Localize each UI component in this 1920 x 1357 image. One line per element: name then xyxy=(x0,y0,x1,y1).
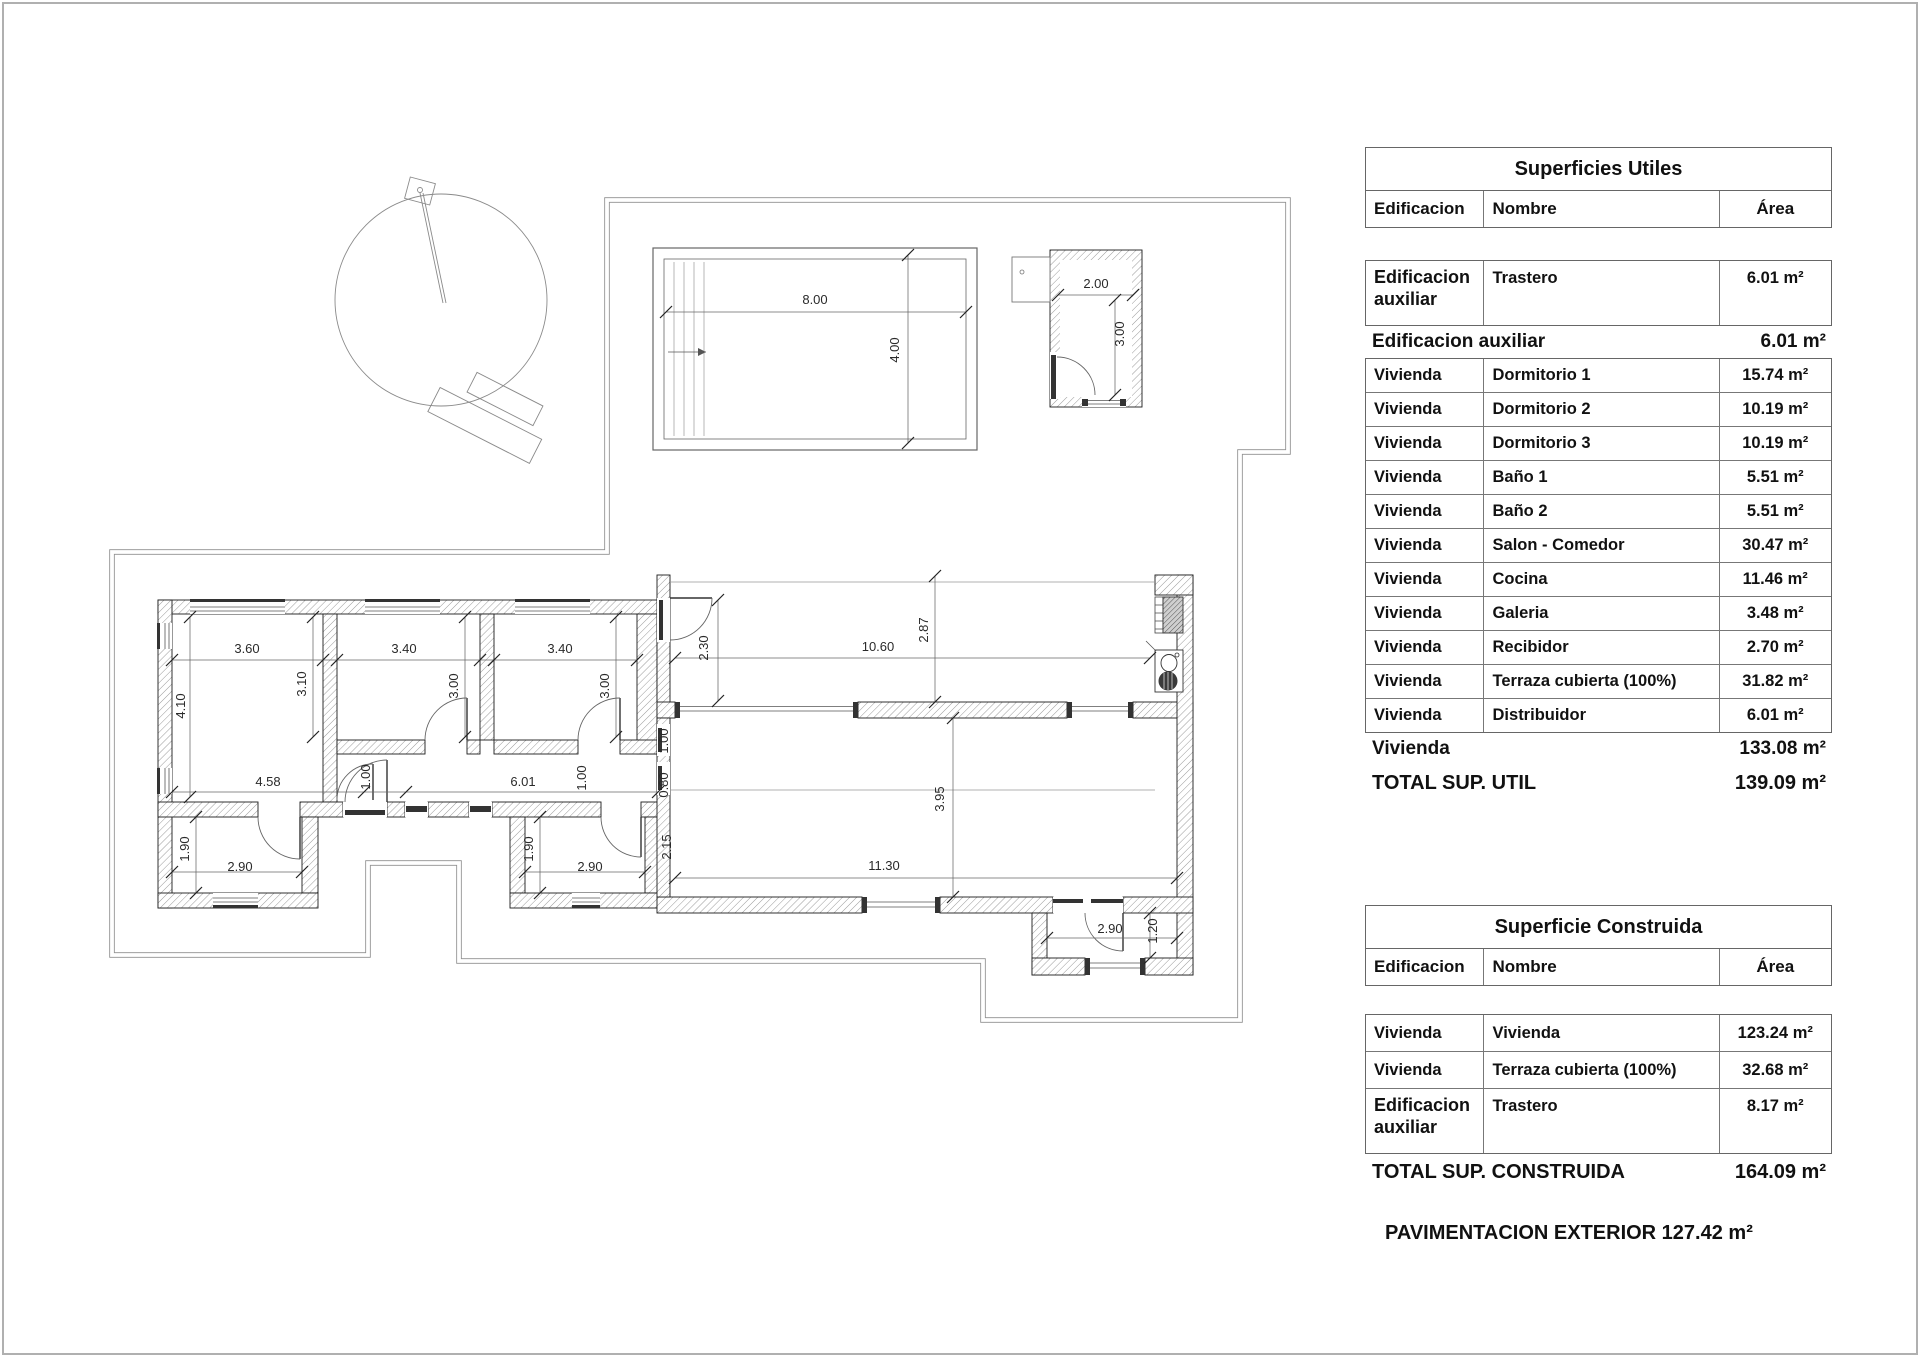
row-area: 8.17 m² xyxy=(1719,1089,1832,1153)
dim-trastero-depth: 3.00 xyxy=(1112,321,1127,346)
table-row: Edificacion auxiliar Trastero 8.17 m² xyxy=(1366,1089,1831,1153)
dim-bath2-width: 2.90 xyxy=(577,859,602,874)
terrace-and-kitchen xyxy=(670,582,1183,790)
dim-bath2-depth: 1.90 xyxy=(521,836,536,861)
row-area: 32.68 m² xyxy=(1719,1052,1832,1088)
table-row: Vivienda Baño 2 5.51 m² xyxy=(1366,495,1831,529)
swimming-pool xyxy=(653,248,977,450)
table-row: Vivienda Dormitorio 3 10.19 m² xyxy=(1366,427,1831,461)
row-nombre: Dormitorio 1 xyxy=(1483,359,1719,392)
dim-pool-width: 8.00 xyxy=(802,292,827,307)
row-nombre: Terraza cubierta (100%) xyxy=(1483,665,1719,698)
utiles-header-area: Área xyxy=(1719,191,1832,227)
row-edificacion: Vivienda xyxy=(1366,631,1483,664)
table-row: Vivienda Galeria 3.48 m² xyxy=(1366,597,1831,631)
row-nombre: Trastero xyxy=(1483,1089,1719,1153)
dim-living-width: 11.30 xyxy=(868,858,900,873)
row-edificacion: Vivienda xyxy=(1366,495,1483,528)
dim-bath1-depth: 1.90 xyxy=(177,836,192,861)
utiles-subtotal-aux-label: Edificacion auxiliar xyxy=(1372,331,1545,353)
pavimentacion-exterior-note: PAVIMENTACION EXTERIOR 127.42 m² xyxy=(1385,1222,1753,1245)
row-nombre: Salon - Comedor xyxy=(1483,529,1719,562)
row-area: 30.47 m² xyxy=(1719,529,1832,562)
utiles-header-row: Edificacion Nombre Área xyxy=(1366,191,1831,227)
dim-hall-b: 1.00 xyxy=(358,764,373,789)
dim-recibidor-door2: 0.80 xyxy=(656,772,671,797)
row-edificacion: Vivienda xyxy=(1366,597,1483,630)
row-nombre: Vivienda xyxy=(1483,1015,1719,1051)
utiles-group-edificacion: Edificacion auxiliar xyxy=(1366,261,1483,325)
dim-porch-width: 2.90 xyxy=(1097,921,1122,936)
utiles-subtotal-viv-label: Vivienda xyxy=(1372,738,1450,760)
utiles-header-edificacion: Edificacion xyxy=(1366,191,1483,227)
bench-2 xyxy=(428,388,542,464)
row-edificacion: Vivienda xyxy=(1366,393,1483,426)
dim-bedroom1-inner: 3.10 xyxy=(294,671,309,696)
row-nombre: Distribuidor xyxy=(1483,699,1719,732)
table-row: Vivienda Terraza cubierta (100%) 32.68 m… xyxy=(1366,1052,1831,1089)
table-row: Vivienda Dormitorio 2 10.19 m² xyxy=(1366,393,1831,427)
row-edificacion: Vivienda xyxy=(1366,359,1483,392)
dim-bath1-width: 2.90 xyxy=(227,859,252,874)
row-area: 2.70 m² xyxy=(1719,631,1832,664)
table-row: Vivienda Dormitorio 1 15.74 m² xyxy=(1366,359,1831,393)
row-nombre: Dormitorio 2 xyxy=(1483,393,1719,426)
table-row: Vivienda Salon - Comedor 30.47 m² xyxy=(1366,529,1831,563)
row-area: 123.24 m² xyxy=(1719,1015,1832,1051)
construida-header-nombre: Nombre xyxy=(1483,949,1719,985)
dim-bedroom1-width: 3.60 xyxy=(234,641,259,656)
stove-icon xyxy=(1163,597,1183,633)
table-row: Vivienda Terraza cubierta (100%) 31.82 m… xyxy=(1366,665,1831,699)
utiles-title: Superficies Utiles xyxy=(1366,148,1831,191)
table-row: Vivienda Vivienda 123.24 m² xyxy=(1366,1015,1831,1052)
table-row: Vivienda Baño 1 5.51 m² xyxy=(1366,461,1831,495)
superficies-utiles-table: Superficies Utiles Edificacion Nombre Ár… xyxy=(1365,147,1832,801)
dim-hall-d: 1.00 xyxy=(574,765,589,790)
row-nombre: Galeria xyxy=(1483,597,1719,630)
row-area: 10.19 m² xyxy=(1719,393,1832,426)
construida-header-row: Edificacion Nombre Área xyxy=(1366,949,1831,985)
row-nombre: Cocina xyxy=(1483,563,1719,596)
dim-bedroom3-width: 3.40 xyxy=(547,641,572,656)
row-edificacion: Vivienda xyxy=(1366,1052,1483,1088)
row-edificacion: Vivienda xyxy=(1366,529,1483,562)
row-nombre: Dormitorio 3 xyxy=(1483,427,1719,460)
dim-terrace-left: 2.30 xyxy=(696,635,711,660)
dim-bedroom1-depth: 4.10 xyxy=(173,693,188,718)
superficie-construida-table: Superficie Construida Edificacion Nombre… xyxy=(1365,905,1832,1190)
table-row: Vivienda Cocina 11.46 m² xyxy=(1366,563,1831,597)
row-nombre: Baño 2 xyxy=(1483,495,1719,528)
construida-header-area: Área xyxy=(1719,949,1832,985)
dim-galeria-depth: 2.15 xyxy=(659,834,674,859)
dim-porch-depth: 1.20 xyxy=(1145,918,1160,943)
dim-bedroom3-depth: 3.00 xyxy=(597,673,612,698)
utiles-subtotal-vivienda: Vivienda 133.08 m² xyxy=(1365,733,1832,765)
row-area: 11.46 m² xyxy=(1719,563,1832,596)
utiles-group-nombre: Trastero xyxy=(1483,261,1719,325)
construida-total-value: 164.09 m² xyxy=(1735,1161,1826,1184)
kitchen-counter-edge xyxy=(1155,597,1163,633)
utiles-subtotal-aux-value: 6.01 m² xyxy=(1761,331,1826,353)
construida-total-label: TOTAL SUP. CONSTRUIDA xyxy=(1372,1161,1625,1184)
table-row: Vivienda Distribuidor 6.01 m² xyxy=(1366,699,1831,732)
dim-living-depth: 3.95 xyxy=(932,786,947,811)
dim-terrace-width: 10.60 xyxy=(862,639,895,654)
row-edificacion: Vivienda xyxy=(1366,461,1483,494)
utiles-total: TOTAL SUP. UTIL 139.09 m² xyxy=(1365,765,1832,801)
row-area: 3.48 m² xyxy=(1719,597,1832,630)
round-feature xyxy=(335,177,547,463)
utiles-total-value: 139.09 m² xyxy=(1735,772,1826,795)
row-edificacion: Vivienda xyxy=(1366,1015,1483,1051)
row-nombre: Baño 1 xyxy=(1483,461,1719,494)
table-row: Vivienda Recibidor 2.70 m² xyxy=(1366,631,1831,665)
dim-hall-length: 6.01 xyxy=(510,774,535,789)
row-area: 6.01 m² xyxy=(1719,699,1832,732)
row-area: 15.74 m² xyxy=(1719,359,1832,392)
utiles-header-nombre: Nombre xyxy=(1483,191,1719,227)
dim-terrace-right: 2.87 xyxy=(916,617,931,642)
dim-bedroom2-depth: 3.00 xyxy=(446,673,461,698)
row-area: 5.51 m² xyxy=(1719,461,1832,494)
row-area: 10.19 m² xyxy=(1719,427,1832,460)
row-edificacion: Vivienda xyxy=(1366,699,1483,732)
dim-pool-depth: 4.00 xyxy=(887,337,902,362)
ac-unit xyxy=(1012,257,1050,302)
construida-header-edificacion: Edificacion xyxy=(1366,949,1483,985)
utiles-group-area: 6.01 m² xyxy=(1719,261,1832,325)
construida-total: TOTAL SUP. CONSTRUIDA 164.09 m² xyxy=(1365,1154,1832,1190)
row-edificacion: Edificacion auxiliar xyxy=(1366,1089,1483,1153)
utiles-subtotal-viv-value: 133.08 m² xyxy=(1739,738,1826,760)
utiles-group-row: Edificacion auxiliar Trastero 6.01 m² xyxy=(1366,261,1831,325)
utiles-total-label: TOTAL SUP. UTIL xyxy=(1372,772,1536,795)
row-edificacion: Vivienda xyxy=(1366,427,1483,460)
dim-bedroom2-width: 3.40 xyxy=(391,641,416,656)
construida-title: Superficie Construida xyxy=(1366,906,1831,949)
row-area: 31.82 m² xyxy=(1719,665,1832,698)
row-edificacion: Vivienda xyxy=(1366,563,1483,596)
row-nombre: Recibidor xyxy=(1483,631,1719,664)
dim-hall-a: 4.58 xyxy=(255,774,280,789)
dim-recibidor-door: 1.00 xyxy=(656,728,671,753)
row-edificacion: Vivienda xyxy=(1366,665,1483,698)
row-nombre: Terraza cubierta (100%) xyxy=(1483,1052,1719,1088)
utiles-subtotal-aux: Edificacion auxiliar 6.01 m² xyxy=(1365,326,1832,358)
row-area: 5.51 m² xyxy=(1719,495,1832,528)
dim-trastero-width: 2.00 xyxy=(1083,276,1108,291)
plan-sheet: 3.60 3.40 3.40 4.10 3.10 3.00 3.00 4.58 … xyxy=(0,0,1920,1357)
